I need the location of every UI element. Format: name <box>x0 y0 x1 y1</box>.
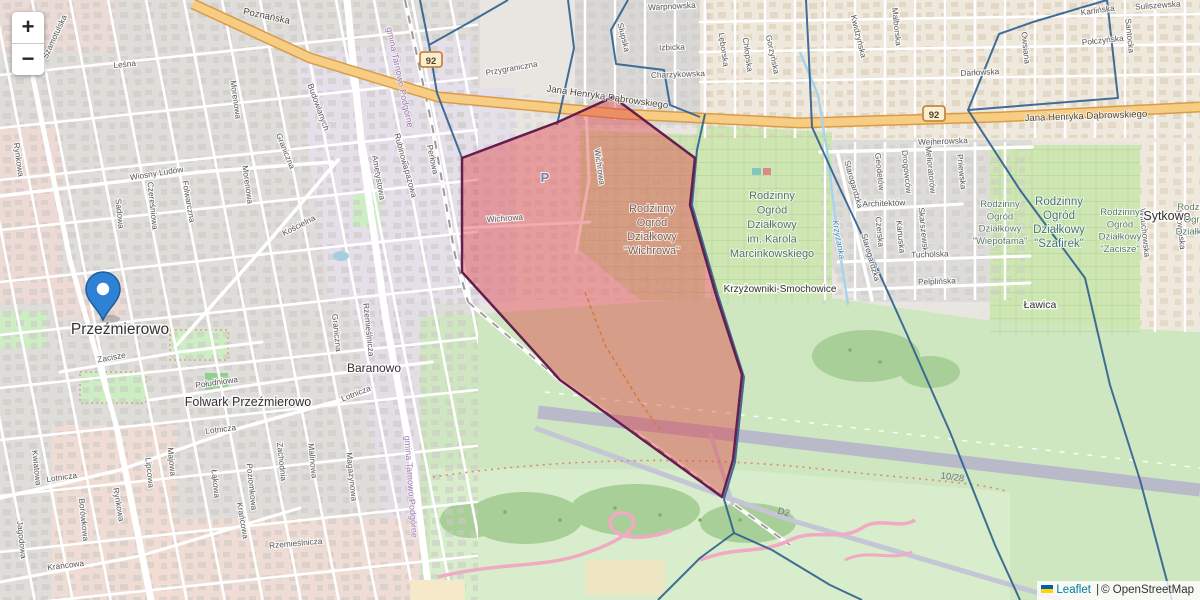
street-label: Tucholska <box>911 248 949 259</box>
allotment-area-label: Działkowy <box>747 219 797 231</box>
place-label: Baranowo <box>347 361 401 375</box>
allotment-area-label: Rodzinny <box>629 203 675 215</box>
street-label: Darłowska <box>960 66 1000 78</box>
zoom-in-button[interactable]: + <box>12 12 44 44</box>
zoom-control: + − <box>12 12 44 75</box>
allotment-area-label: Rodzinny <box>1035 196 1083 208</box>
attribution-bar: Leaflet |© OpenStreetMap <box>1037 581 1200 600</box>
svg-text:92: 92 <box>929 110 940 121</box>
allotment-area-label: Rodzinny <box>1177 202 1200 213</box>
allotment-area-label: Marcinkowskiego <box>730 248 814 260</box>
route-shield: 92 <box>923 106 945 121</box>
allotment-area-label: Rodzinny <box>1100 207 1140 218</box>
allotment-area-label: Działkowy <box>1176 227 1200 238</box>
parking-icon: P <box>541 170 550 185</box>
allotment-area-label: Działkowy <box>1099 232 1142 243</box>
allotment-area-label: Działkowy <box>1033 224 1085 236</box>
leaflet-link[interactable]: Leaflet <box>1056 584 1091 596</box>
allotment-area-label: Ogród <box>1043 210 1075 222</box>
allotment-area-label: Działkowy <box>979 224 1022 235</box>
allotment-area-label: Działkowy <box>627 231 677 243</box>
street-label: Izbicka <box>659 42 686 53</box>
place-label: Folwark Przeźmierowo <box>185 395 311 409</box>
street-label: Architektów <box>862 197 906 209</box>
osm-attribution: © OpenStreetMap <box>1101 584 1194 596</box>
allotment-area-label: Rodzinny <box>749 190 795 202</box>
marker-pin-dot <box>97 283 109 295</box>
street-label: Charzykowska <box>651 68 706 80</box>
allotment-area-label: "Szafirek" <box>1034 238 1084 250</box>
ukraine-flag-icon <box>1041 585 1053 593</box>
street-label: Wejherowska <box>918 135 968 147</box>
route-shield: 92 <box>420 52 442 67</box>
allotment-area-label: "Wichrowa" <box>624 245 680 257</box>
place-label: Ławica <box>1024 299 1057 311</box>
allotment-area-label: im. Karola <box>747 234 797 246</box>
allotment-area-label: Ogród <box>1107 219 1133 230</box>
allotment-area-label: Ogród <box>637 217 668 229</box>
svg-text:92: 92 <box>426 56 437 67</box>
allotment-area-label: "Zacisze" <box>1100 244 1139 255</box>
place-label: Przeźmierowo <box>71 321 169 338</box>
allotment-area-label: "Wiepofama" <box>973 236 1028 247</box>
place-label: Krzyżowniki-Smochowice <box>724 284 837 295</box>
map-canvas[interactable]: SzamotulskaLeśnaWiosny LudówRynkowaRynko… <box>0 0 1200 600</box>
allotment-area-label: Rodzinny <box>980 199 1020 210</box>
zoom-out-button[interactable]: − <box>12 44 44 75</box>
allotment-area-label: Ogród <box>1184 214 1200 225</box>
street-label: Pelplińska <box>918 275 957 286</box>
allotment-area-label: Ogród <box>987 211 1013 222</box>
allotment-area-label: Ogród <box>757 205 788 217</box>
attribution-separator: | <box>1096 584 1099 596</box>
map-viewport[interactable]: SzamotulskaLeśnaWiosny LudówRynkowaRynko… <box>0 0 1200 600</box>
